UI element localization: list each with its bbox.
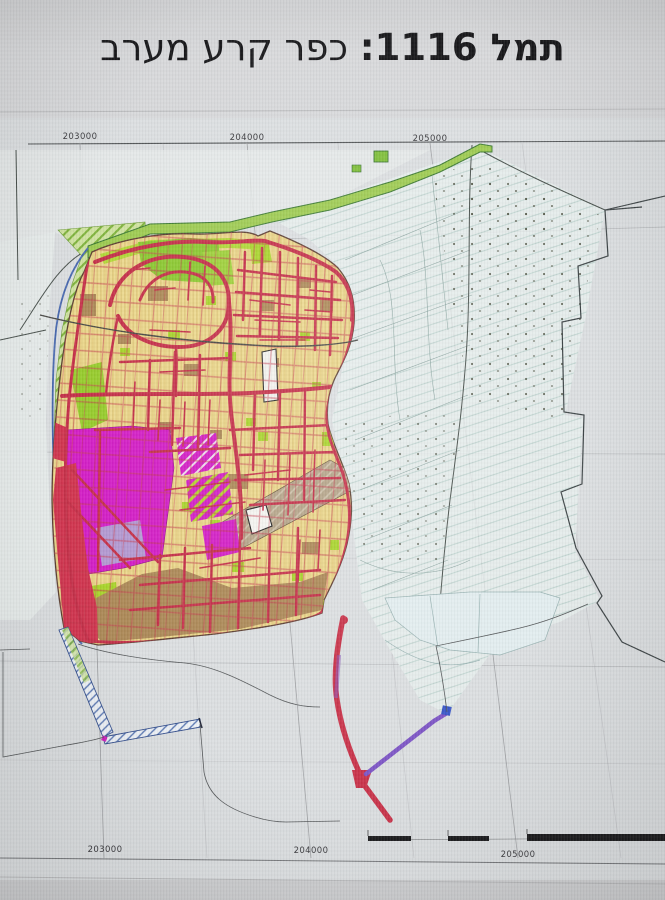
plan-name: כפר קרע מערב — [100, 26, 348, 69]
grid-label-bottom-204000: 204000 — [294, 846, 329, 856]
grid-label-top-204000: 204000 — [230, 133, 265, 143]
grid-label-bottom-203000: 203000 — [88, 845, 123, 855]
street-texture — [50, 230, 360, 648]
grid-label-top-205000: 205000 — [413, 134, 448, 144]
grid-label-bottom-205000: 205000 — [501, 850, 536, 860]
sheet-crease — [0, 109, 665, 112]
photographed-plan-page: תמל 1116: כפר קרע מערב — [0, 0, 665, 900]
plan-title: תמל 1116: כפר קרע מערב — [0, 26, 665, 69]
plan-number: תמל 1116: — [360, 26, 565, 69]
zoning-map: 203000 204000 205000 203000 204000 20500… — [0, 0, 665, 900]
town-area — [40, 230, 360, 648]
grid-label-top-203000: 203000 — [63, 132, 98, 142]
